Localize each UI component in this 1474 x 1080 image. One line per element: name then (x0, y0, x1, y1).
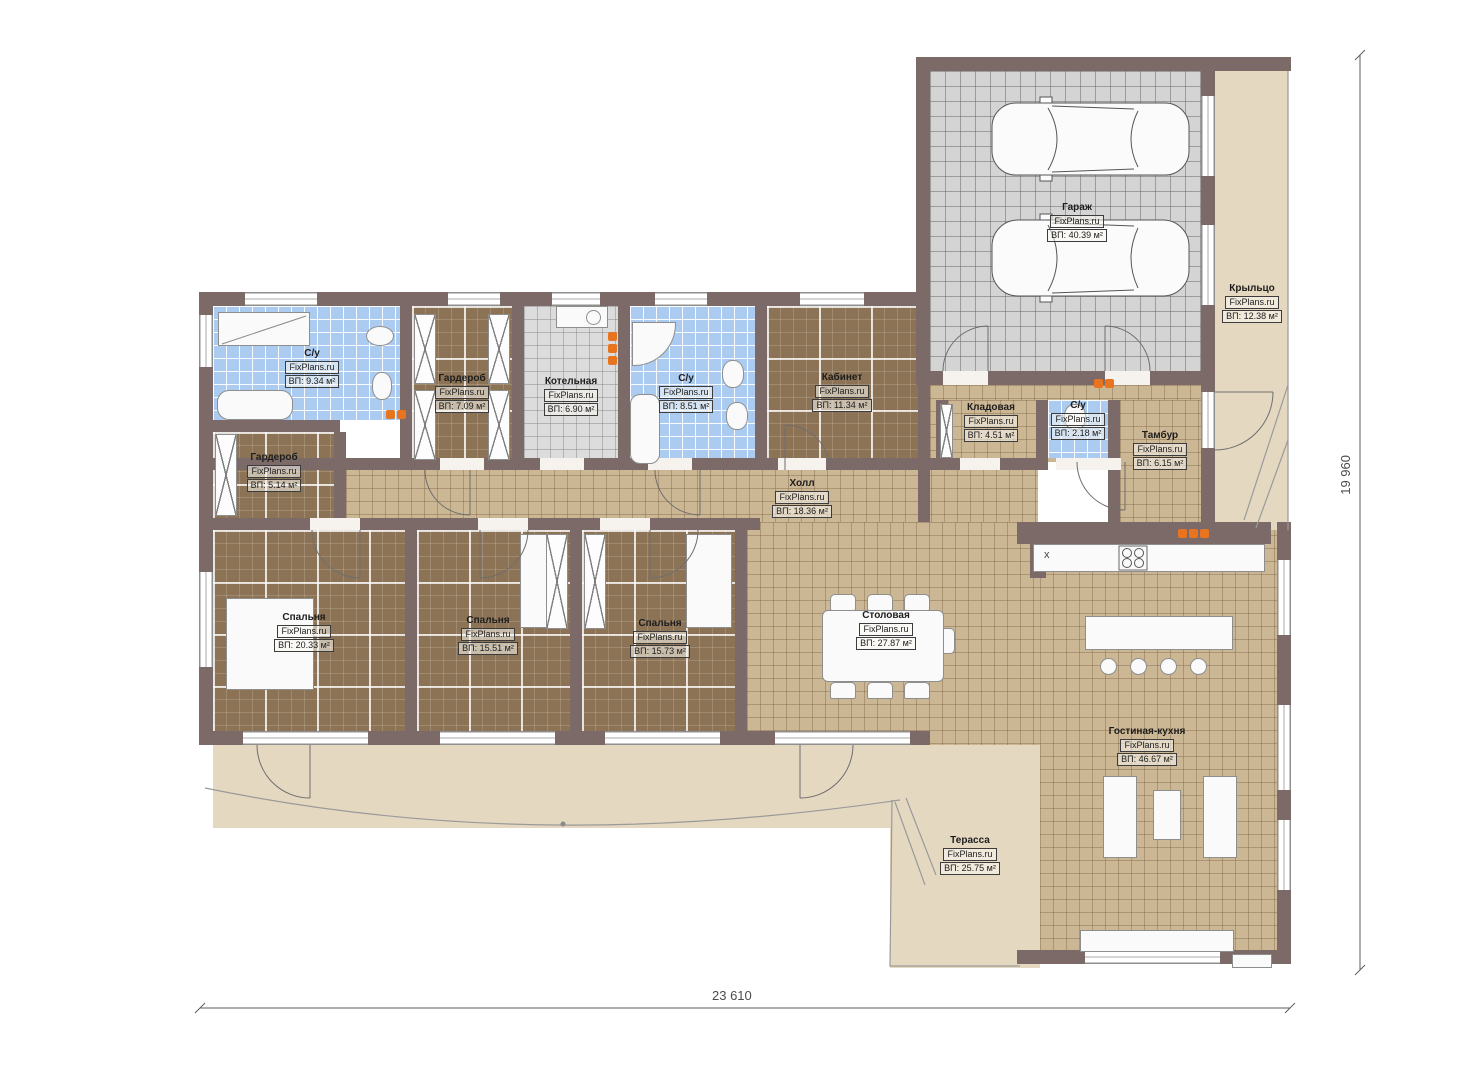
room-name: С/у (1036, 400, 1120, 412)
room-area: ВП: 46.67 м² (1117, 753, 1177, 766)
stool (1130, 658, 1147, 675)
wall (735, 522, 747, 731)
window (448, 292, 500, 306)
room-name: Спальня (258, 612, 350, 624)
room-label-garage: Гараж FixPlans.ru ВП: 40.39 м² (1030, 202, 1124, 242)
door-opening (440, 458, 484, 470)
kitchen-counter (1033, 544, 1265, 572)
car-icon (988, 96, 1193, 182)
window (800, 292, 864, 306)
room-label-kladovaya: Кладовая FixPlans.ru ВП: 4.51 м² (944, 402, 1038, 442)
watermark: FixPlans.ru (943, 848, 996, 861)
window (1277, 705, 1291, 790)
room-label-garderob2: Гардероб FixPlans.ru ВП: 5.14 м² (230, 452, 318, 492)
floor-terrace-strip (213, 745, 905, 828)
radiator (608, 356, 617, 365)
stove-icon (1118, 545, 1148, 571)
room-area: ВП: 7.09 м² (435, 400, 490, 413)
doorstep (1232, 954, 1272, 968)
radiator (1200, 529, 1209, 538)
radiator (1189, 529, 1198, 538)
room-label-terrassa: Терасса FixPlans.ru ВП: 25.75 м² (924, 835, 1016, 875)
door-opening (478, 518, 528, 530)
chair (904, 682, 930, 699)
room-area: ВП: 12.38 м² (1222, 310, 1282, 323)
stool (1190, 658, 1207, 675)
room-area: ВП: 6.15 м² (1133, 457, 1188, 470)
watermark: FixPlans.ru (544, 389, 597, 402)
toilet (372, 372, 392, 400)
room-name: Кабинет (796, 372, 888, 384)
room-label-su1: С/у FixPlans.ru ВП: 9.34 м² (268, 348, 356, 388)
door-opening (960, 458, 1000, 470)
door-opening (1077, 458, 1121, 470)
window (605, 731, 720, 745)
stool (1160, 658, 1177, 675)
room-area: ВП: 2.18 м² (1051, 427, 1106, 440)
room-name: Спальня (614, 618, 706, 630)
closet (584, 534, 606, 629)
window (245, 292, 317, 306)
watermark: FixPlans.ru (1051, 413, 1104, 426)
room-label-su3: С/у FixPlans.ru ВП: 2.18 м² (1036, 400, 1120, 440)
radiator (608, 332, 617, 341)
window (440, 731, 555, 745)
room-area: ВП: 8.51 м² (659, 400, 714, 413)
room-area: ВП: 9.34 м² (285, 375, 340, 388)
wall (1017, 522, 1271, 544)
chair (830, 682, 856, 699)
room-name: Терасса (924, 835, 1016, 847)
watermark: FixPlans.ru (659, 386, 712, 399)
watermark: FixPlans.ru (1120, 739, 1173, 752)
room-area: ВП: 11.34 м² (812, 399, 871, 412)
watermark: FixPlans.ru (964, 415, 1017, 428)
watermark: FixPlans.ru (859, 623, 912, 636)
wall (916, 57, 1215, 71)
window (243, 731, 368, 745)
wall (570, 530, 582, 731)
kitchen-island (1085, 616, 1233, 650)
wall (213, 420, 340, 432)
sofa (1103, 776, 1137, 858)
chair (904, 594, 930, 611)
window (552, 292, 600, 306)
bathtub (218, 312, 310, 346)
room-label-su2: С/у FixPlans.ru ВП: 8.51 м² (642, 373, 730, 413)
stool (1100, 658, 1117, 675)
door-opening (943, 371, 988, 385)
wall (334, 432, 346, 530)
garage-door-opening (1201, 96, 1215, 176)
room-area: ВП: 4.51 м² (964, 429, 1019, 442)
wall (1215, 57, 1291, 71)
door-opening (540, 458, 584, 470)
room-area: ВП: 15.51 м² (458, 642, 518, 655)
room-area: ВП: 25.75 м² (940, 862, 1000, 875)
window (655, 292, 707, 306)
room-label-kryltso: Крыльцо FixPlans.ru ВП: 12.38 м² (1208, 283, 1296, 323)
room-name: Гостиная-кухня (1092, 726, 1202, 738)
room-label-holl: Холл FixPlans.ru ВП: 18.36 м² (756, 478, 848, 518)
room-name: Столовая (840, 610, 932, 622)
room-area: ВП: 6.90 м² (544, 403, 599, 416)
bathtub (217, 390, 293, 420)
room-name: Кладовая (944, 402, 1038, 414)
radiator (1094, 379, 1103, 388)
washbasin (366, 326, 394, 346)
floor-plan: x (0, 0, 1474, 1080)
sink-symbol: x (1044, 549, 1050, 561)
room-name: Гардероб (418, 373, 506, 385)
boiler (586, 310, 601, 325)
wall (918, 306, 930, 522)
wall (405, 530, 417, 731)
room-label-gostinaya: Гостиная-кухня FixPlans.ru ВП: 46.67 м² (1092, 726, 1202, 766)
door-opening (778, 458, 826, 470)
tv-console (1080, 930, 1234, 952)
watermark: FixPlans.ru (775, 491, 828, 504)
room-label-stolovaya: Столовая FixPlans.ru ВП: 27.87 м² (840, 610, 932, 650)
room-area: ВП: 20.33 м² (274, 639, 334, 652)
dimension-bottom: 23 610 (712, 988, 752, 1003)
room-area: ВП: 5.14 м² (247, 479, 302, 492)
chair (830, 594, 856, 611)
room-label-tambur: Тамбур FixPlans.ru ВП: 6.15 м² (1116, 430, 1204, 470)
room-name: С/у (268, 348, 356, 360)
door-opening (310, 518, 360, 530)
chair (867, 682, 893, 699)
wall (755, 292, 767, 470)
radiator (1105, 379, 1114, 388)
sofa (1203, 776, 1237, 858)
watermark: FixPlans.ru (633, 631, 686, 644)
dimension-right: 19 960 (1338, 455, 1353, 495)
room-name: Гараж (1030, 202, 1124, 214)
watermark: FixPlans.ru (247, 465, 300, 478)
bed (686, 534, 732, 628)
watermark: FixPlans.ru (277, 625, 330, 638)
radiator (397, 410, 406, 419)
window (1277, 820, 1291, 890)
room-name: Спальня (442, 615, 534, 627)
room-name: Крыльцо (1208, 283, 1296, 295)
closet (546, 534, 568, 629)
wall (400, 292, 412, 470)
radiator (608, 344, 617, 353)
room-label-bedroom3: Спальня FixPlans.ru ВП: 15.73 м² (614, 618, 706, 658)
window (1277, 560, 1291, 635)
room-label-bedroom2: Спальня FixPlans.ru ВП: 15.51 м² (442, 615, 534, 655)
room-area: ВП: 40.39 м² (1047, 229, 1107, 242)
watermark: FixPlans.ru (1133, 443, 1186, 456)
room-area: ВП: 27.87 м² (856, 637, 916, 650)
wall (618, 292, 630, 470)
watermark: FixPlans.ru (461, 628, 514, 641)
watermark: FixPlans.ru (435, 386, 488, 399)
watermark: FixPlans.ru (1225, 296, 1278, 309)
room-name: Тамбур (1116, 430, 1204, 442)
window (199, 572, 213, 667)
chair (867, 594, 893, 611)
room-label-garderob1: Гардероб FixPlans.ru ВП: 7.09 м² (418, 373, 506, 413)
radiator (386, 410, 395, 419)
wall (512, 292, 524, 470)
watermark: FixPlans.ru (285, 361, 338, 374)
watermark: FixPlans.ru (815, 385, 868, 398)
window (199, 315, 213, 367)
room-name: Холл (756, 478, 848, 490)
watermark: FixPlans.ru (1050, 215, 1103, 228)
room-label-bedroom1: Спальня FixPlans.ru ВП: 20.33 м² (258, 612, 350, 652)
room-area: ВП: 15.73 м² (630, 645, 690, 658)
floor-hall (346, 462, 1038, 522)
room-label-kotelnaya: Котельная FixPlans.ru ВП: 6.90 м² (524, 376, 618, 416)
room-name: Котельная (524, 376, 618, 388)
radiator (1178, 529, 1187, 538)
room-label-kabinet: Кабинет FixPlans.ru ВП: 11.34 м² (796, 372, 888, 412)
room-name: Гардероб (230, 452, 318, 464)
door-opening (600, 518, 650, 530)
room-area: ВП: 18.36 м² (772, 505, 832, 518)
window (1085, 950, 1220, 964)
window (775, 731, 910, 745)
room-name: С/у (642, 373, 730, 385)
coffee-table (1153, 790, 1181, 840)
